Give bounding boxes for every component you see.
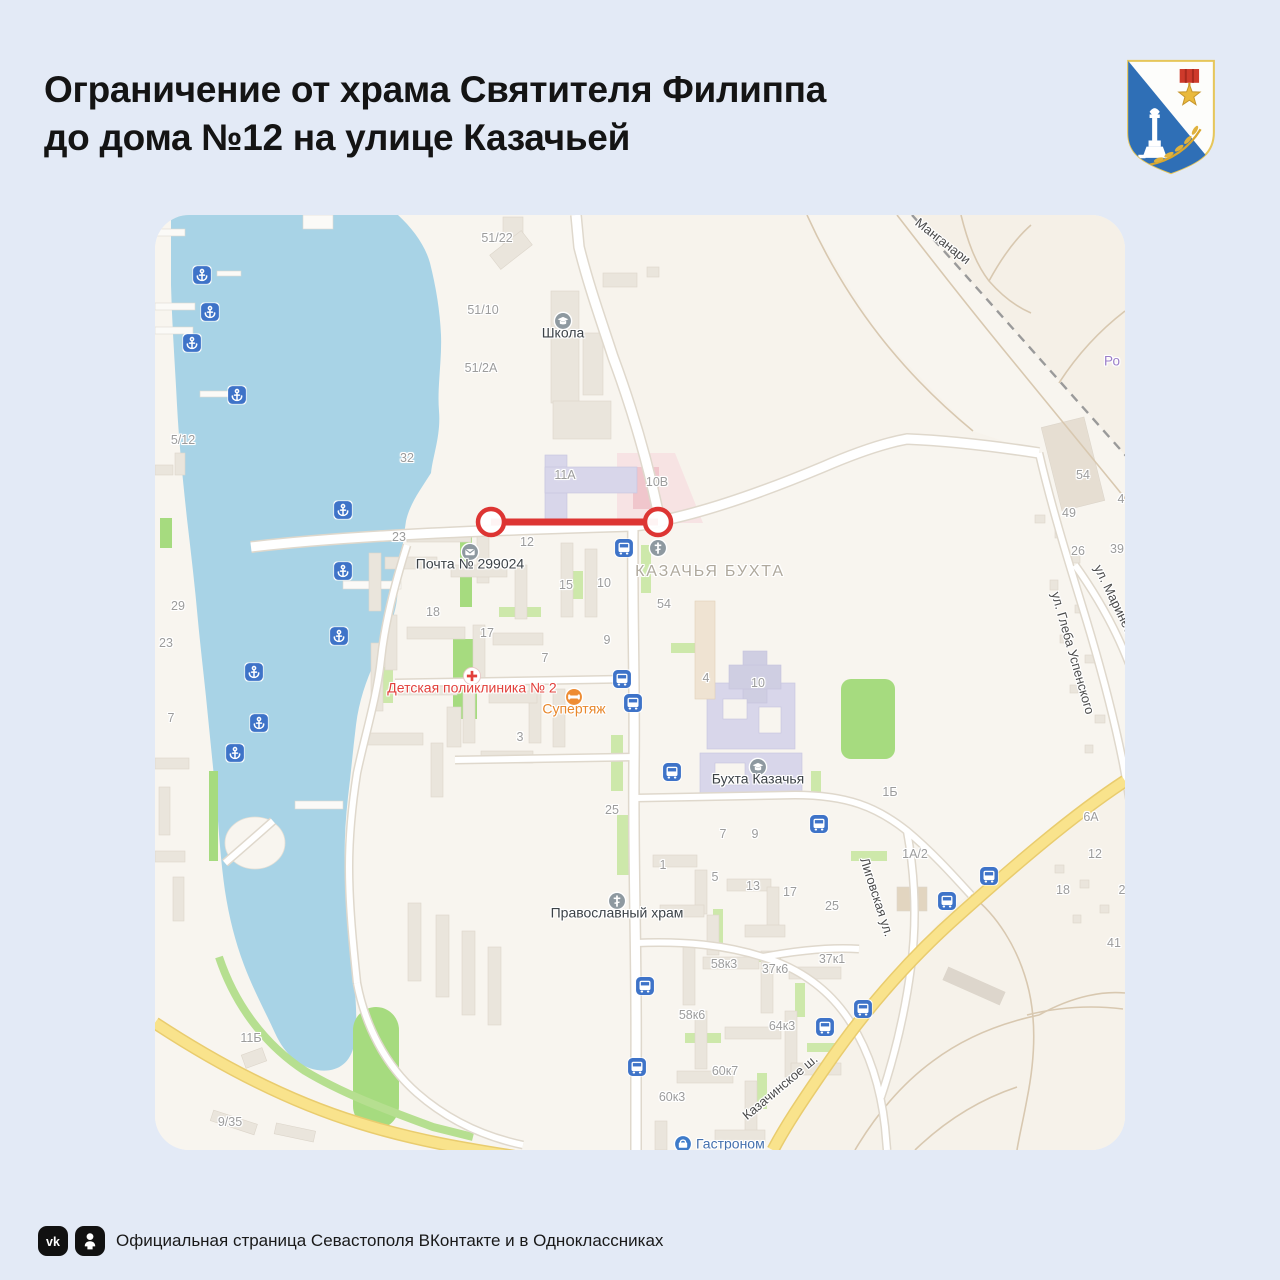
title-line-2: до дома №12 на улице Казачьей (44, 114, 826, 162)
poi-label: Православный храм (551, 905, 684, 922)
street-name-label: Лиговская ул. (857, 856, 897, 939)
house-number-label: 54 (657, 597, 671, 611)
house-number-label: 37к1 (819, 952, 845, 966)
page-title: Ограничение от храма Святителя Филиппа д… (44, 66, 826, 162)
house-number-label: 17 (480, 626, 494, 640)
gastro-icon (674, 1135, 693, 1151)
house-number-label: 7 (720, 827, 727, 841)
house-number-label: 4 (1118, 492, 1125, 506)
footer: vk Официальная страница Севастополя ВКон… (38, 1226, 663, 1256)
house-number-label: 41 (1107, 936, 1121, 950)
house-number-label: 17 (783, 885, 797, 899)
bus-stop-icon (938, 892, 957, 911)
bus-stop-icon (615, 539, 634, 558)
house-number-label: 6А (1083, 810, 1098, 824)
house-number-label: 58к6 (679, 1008, 705, 1022)
map-label-layer: 51/2251/1051/2А5/123211А10В2312151054181… (155, 215, 1125, 1150)
place-label: Ро (1104, 354, 1120, 369)
bus-stop-icon (636, 977, 655, 996)
house-number-label: 11Б (240, 1031, 261, 1045)
house-number-label: 9 (752, 827, 759, 841)
house-number-label: 51/2А (465, 361, 498, 375)
poi-label: Почта № 299024 (416, 556, 524, 573)
district-label: КАЗАЧЬЯ БУХТА (635, 563, 785, 581)
street-name-label: ул. Глеба Успенского (1048, 590, 1097, 716)
house-number-label: 25 (605, 803, 619, 817)
house-number-label: 23 (159, 636, 173, 650)
house-number-label: 51/10 (467, 303, 498, 317)
poi-label: Детская поликлиника № 2 (387, 680, 556, 697)
house-number-label: 18 (426, 605, 440, 619)
house-number-label: 54 (1076, 468, 1090, 482)
sevastopol-emblem-icon (1122, 56, 1220, 178)
house-number-label: 1Б (882, 785, 897, 799)
house-number-label: 37к6 (762, 962, 788, 976)
house-number-label: 29 (171, 599, 185, 613)
street-name-label: ул. Маринеско (1091, 562, 1125, 647)
bus-stop-icon (628, 1058, 647, 1077)
house-number-label: 10 (751, 676, 765, 690)
house-number-label: 39 (1110, 542, 1124, 556)
house-number-label: 51/22 (481, 231, 512, 245)
house-number-label: 58к3 (711, 957, 737, 971)
house-number-label: 23 (392, 530, 406, 544)
house-number-label: 49 (1062, 506, 1076, 520)
street-name-label: Манганари (912, 215, 973, 267)
poi-label: Школа (542, 325, 585, 342)
house-number-label: 9/35 (218, 1115, 242, 1129)
bus-stop-icon (613, 670, 632, 689)
svg-text:vk: vk (46, 1235, 60, 1249)
bus-stop-icon (980, 867, 999, 886)
house-number-label: 5 (712, 870, 719, 884)
bus-stop-icon (624, 694, 643, 713)
house-number-label: 1А/2 (902, 847, 928, 861)
house-number-label: 10 (597, 576, 611, 590)
map: 51/2251/1051/2А5/123211А10В2312151054181… (155, 215, 1125, 1150)
anchor-pier-icon (334, 562, 353, 581)
anchor-pier-icon (245, 663, 264, 682)
house-number-label: 32 (400, 451, 414, 465)
house-number-label: 5/12 (171, 433, 195, 447)
bus-stop-icon (854, 1000, 873, 1019)
house-number-label: 12 (520, 535, 534, 549)
poi-label: Гастроном (696, 1136, 765, 1150)
anchor-pier-icon (183, 334, 202, 353)
house-number-label: 2 (1119, 883, 1125, 897)
house-number-label: 26 (1071, 544, 1085, 558)
house-number-label: 13 (746, 879, 760, 893)
anchor-pier-icon (250, 714, 269, 733)
poi-label: Супертяж (542, 701, 605, 718)
house-number-label: 4 (703, 671, 710, 685)
house-number-label: 1 (660, 858, 667, 872)
house-number-label: 7 (168, 711, 175, 725)
vk-icon: vk (38, 1226, 68, 1256)
bus-stop-icon (663, 763, 682, 782)
anchor-pier-icon (226, 744, 245, 763)
title-line-1: Ограничение от храма Святителя Филиппа (44, 66, 826, 114)
house-number-label: 7 (542, 651, 549, 665)
house-number-label: 18 (1056, 883, 1070, 897)
bus-stop-icon (816, 1018, 835, 1037)
house-number-label: 10В (646, 475, 668, 489)
footer-text: Официальная страница Севастополя ВКонтак… (116, 1231, 663, 1251)
anchor-pier-icon (330, 627, 349, 646)
bus-stop-icon (810, 815, 829, 834)
street-name-label: Казачинское ш. (739, 1051, 820, 1122)
house-number-label: 15 (559, 578, 573, 592)
anchor-pier-icon (193, 266, 212, 285)
house-number-label: 64к3 (769, 1019, 795, 1033)
poi-label: Бухта Казачья (712, 771, 805, 788)
post-image: Ограничение от храма Святителя Филиппа д… (0, 0, 1280, 1280)
anchor-pier-icon (228, 386, 247, 405)
church-icon (649, 539, 668, 558)
anchor-pier-icon (334, 501, 353, 520)
house-number-label: 60к7 (712, 1064, 738, 1078)
house-number-label: 9 (604, 633, 611, 647)
house-number-label: 12 (1088, 847, 1102, 861)
ok-icon (75, 1226, 105, 1256)
house-number-label: 11А (554, 468, 575, 482)
house-number-label: 3 (517, 730, 524, 744)
house-number-label: 60к3 (659, 1090, 685, 1104)
anchor-pier-icon (201, 303, 220, 322)
house-number-label: 25 (825, 899, 839, 913)
